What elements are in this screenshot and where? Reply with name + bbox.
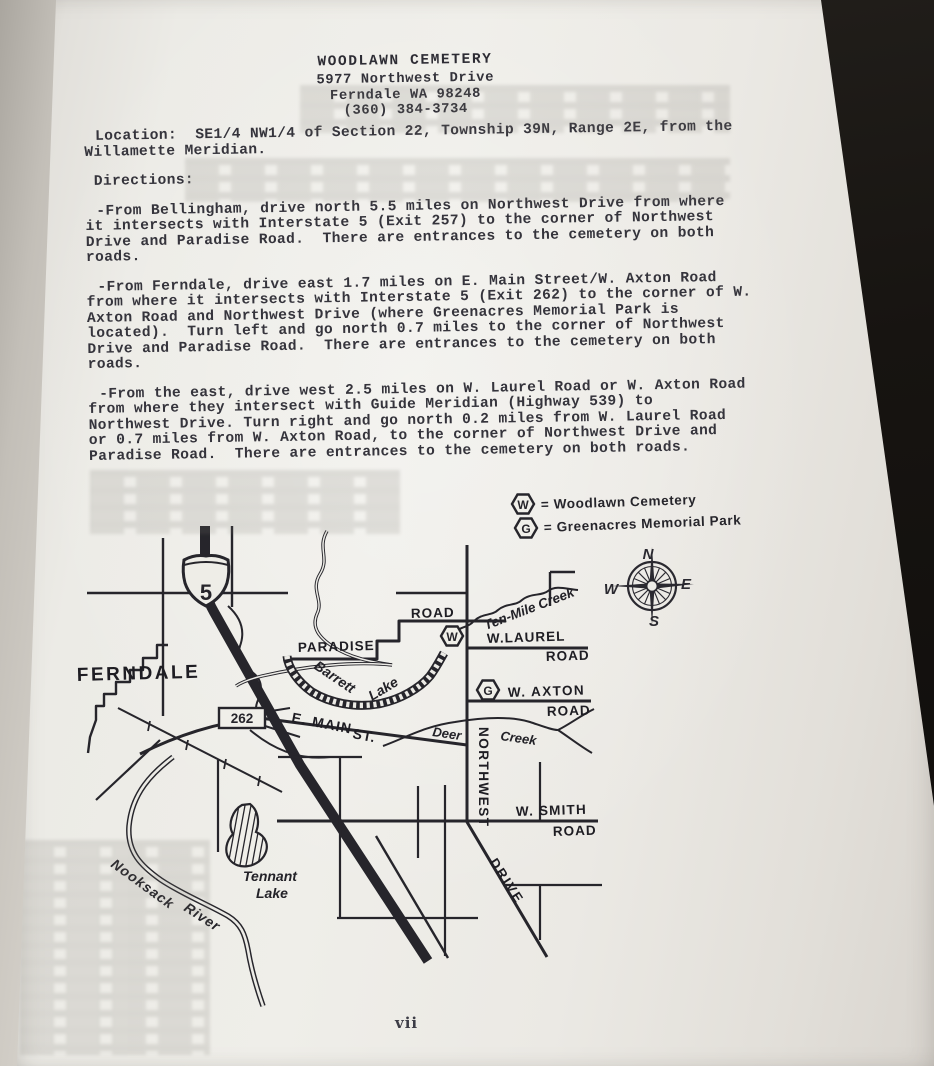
- e-main-label: E. MAIN: [290, 709, 353, 736]
- ferndale-boundary: [88, 645, 168, 753]
- compass-south: S: [649, 613, 659, 630]
- map-legend: W = Woodlawn Cemetery G = Greenacres Mem…: [512, 492, 742, 537]
- w-axton-label: W. AXTON: [508, 683, 586, 700]
- directions-from-ferndale: -From Ferndale, drive east 1.7 miles on …: [86, 269, 787, 373]
- tennant-lake-shape: [214, 800, 282, 876]
- legend-greenacres-letter: G: [521, 522, 530, 536]
- compass-west: W: [604, 581, 620, 598]
- compass-north: N: [643, 546, 655, 563]
- ferndale-label: FERNDALE: [77, 662, 201, 686]
- compass-rose-icon: N W E S: [604, 546, 694, 630]
- map-road-labels: FERNDALE PARADISE ROAD W.LAUREL ROAD W. …: [77, 605, 597, 907]
- location-paragraph: Location: SE1/4 NW1/4 of Section 22, Tow…: [84, 119, 784, 161]
- legend-woodlawn-label: = Woodlawn Cemetery: [541, 492, 697, 512]
- directions-from-east: -From the east, drive west 2.5 miles on …: [88, 376, 789, 464]
- book-page: WOODLAWN CEMETERY 5977 Northwest Drive F…: [0, 0, 934, 1066]
- location-map: 262 5 N W E S: [60, 480, 800, 1020]
- deer-creek-label: Creek: [500, 728, 539, 748]
- paradise-label: PARADISE: [298, 638, 375, 655]
- directions-from-bellingham: -From Bellingham, drive north 5.5 miles …: [85, 193, 786, 266]
- woodlawn-marker-letter: W: [446, 630, 458, 644]
- compass-east: E: [681, 576, 692, 593]
- w-smith-label: W. SMITH: [516, 802, 588, 819]
- e-main-st-label: ST.: [351, 725, 377, 745]
- legend-greenacres-label: = Greenacres Memorial Park: [544, 512, 742, 535]
- header-phone: (360) 384-3734: [256, 101, 556, 121]
- interstate-number: 5: [200, 580, 212, 605]
- drive-label: DRIVE: [486, 855, 527, 906]
- exit-number: 262: [231, 711, 254, 726]
- tennant-label: Tennant: [243, 868, 298, 884]
- paradise-road-label: ROAD: [411, 605, 455, 621]
- interstate-5-shield: 5: [183, 556, 229, 607]
- page-title: WOODLAWN CEMETERY: [255, 51, 555, 72]
- w-laurel-road-label: ROAD: [546, 648, 590, 664]
- w-laurel-label: W.LAUREL: [487, 629, 566, 646]
- ten-mile-creek-label: Ten-Mile Creek: [482, 584, 578, 633]
- w-axton-road-label: ROAD: [547, 703, 591, 719]
- directions-text: Location: SE1/4 NW1/4 of Section 22, Tow…: [84, 119, 789, 479]
- greenacres-marker-letter: G: [483, 684, 492, 698]
- w-smith-road-label: ROAD: [553, 823, 597, 839]
- directions-heading: Directions:: [85, 164, 785, 190]
- tennant-lake-label: Lake: [256, 885, 288, 901]
- typewritten-content: WOODLAWN CEMETERY 5977 Northwest Drive F…: [0, 0, 934, 521]
- cemetery-header: WOODLAWN CEMETERY 5977 Northwest Drive F…: [255, 51, 556, 121]
- legend-woodlawn-letter: W: [517, 498, 529, 512]
- page-number: vii: [395, 1014, 418, 1032]
- northwest-label: NORTHWEST: [476, 727, 491, 828]
